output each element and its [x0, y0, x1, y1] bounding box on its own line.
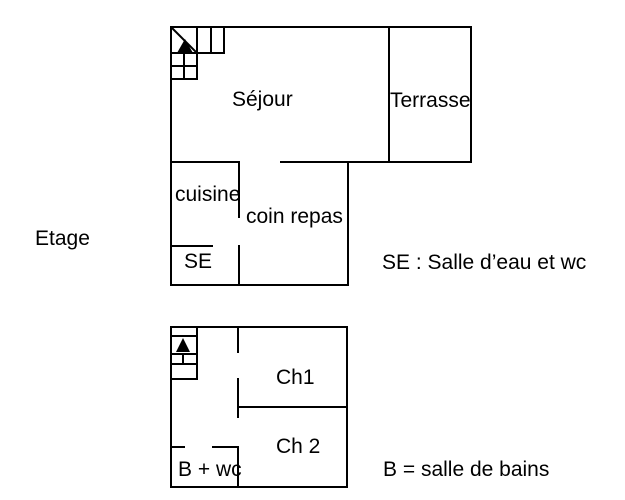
hall-wall-segment-2: [237, 378, 239, 418]
sejour-bottom-wall-left-segment: [170, 161, 240, 163]
stair-tread-divider: [170, 65, 198, 67]
stair-tread-divider: [210, 26, 212, 54]
stair-tread-divider: [170, 335, 198, 337]
floor-title: Etage: [35, 228, 90, 249]
room-label-se: SE: [184, 251, 212, 272]
room-label-ch2: Ch 2: [276, 436, 320, 457]
legend-b-note: B = salle de bains: [383, 459, 549, 480]
cuisine-right-wall-lower-segment: [238, 245, 240, 286]
room-label-b-wc: B + wc: [178, 459, 242, 480]
stair-tread-divider: [170, 363, 198, 365]
room-label-coin-repas: coin repas: [246, 206, 343, 227]
room-label-ch1: Ch1: [276, 367, 315, 388]
stair-up-arrow-icon: [177, 39, 193, 53]
ch1-ch2-divider-wall: [237, 406, 348, 408]
se-top-wall: [170, 245, 213, 247]
room-label-terrasse: Terrasse: [390, 90, 471, 111]
stair-arrow-stem: [182, 353, 184, 365]
hall-wall-segment-1: [237, 326, 239, 353]
room-label-cuisine: cuisine: [175, 184, 240, 205]
bwc-top-wall-right-segment: [212, 446, 239, 448]
stair-up-arrow-icon: [176, 338, 190, 352]
floor-plan-canvas: Séjour Terrasse cuisine coin repas SE Ch…: [0, 0, 625, 500]
stair-tread-divider: [170, 353, 198, 355]
bwc-top-wall-left-segment: [170, 446, 185, 448]
room-label-sejour: Séjour: [232, 89, 293, 110]
sejour-bottom-wall-right-segment: [280, 161, 472, 163]
legend-se-note: SE : Salle d’eau et wc: [382, 252, 586, 273]
coin-repas-right-wall: [347, 161, 349, 286]
upper-bottom-wall: [170, 284, 349, 286]
lower-bottom-wall: [170, 486, 348, 488]
